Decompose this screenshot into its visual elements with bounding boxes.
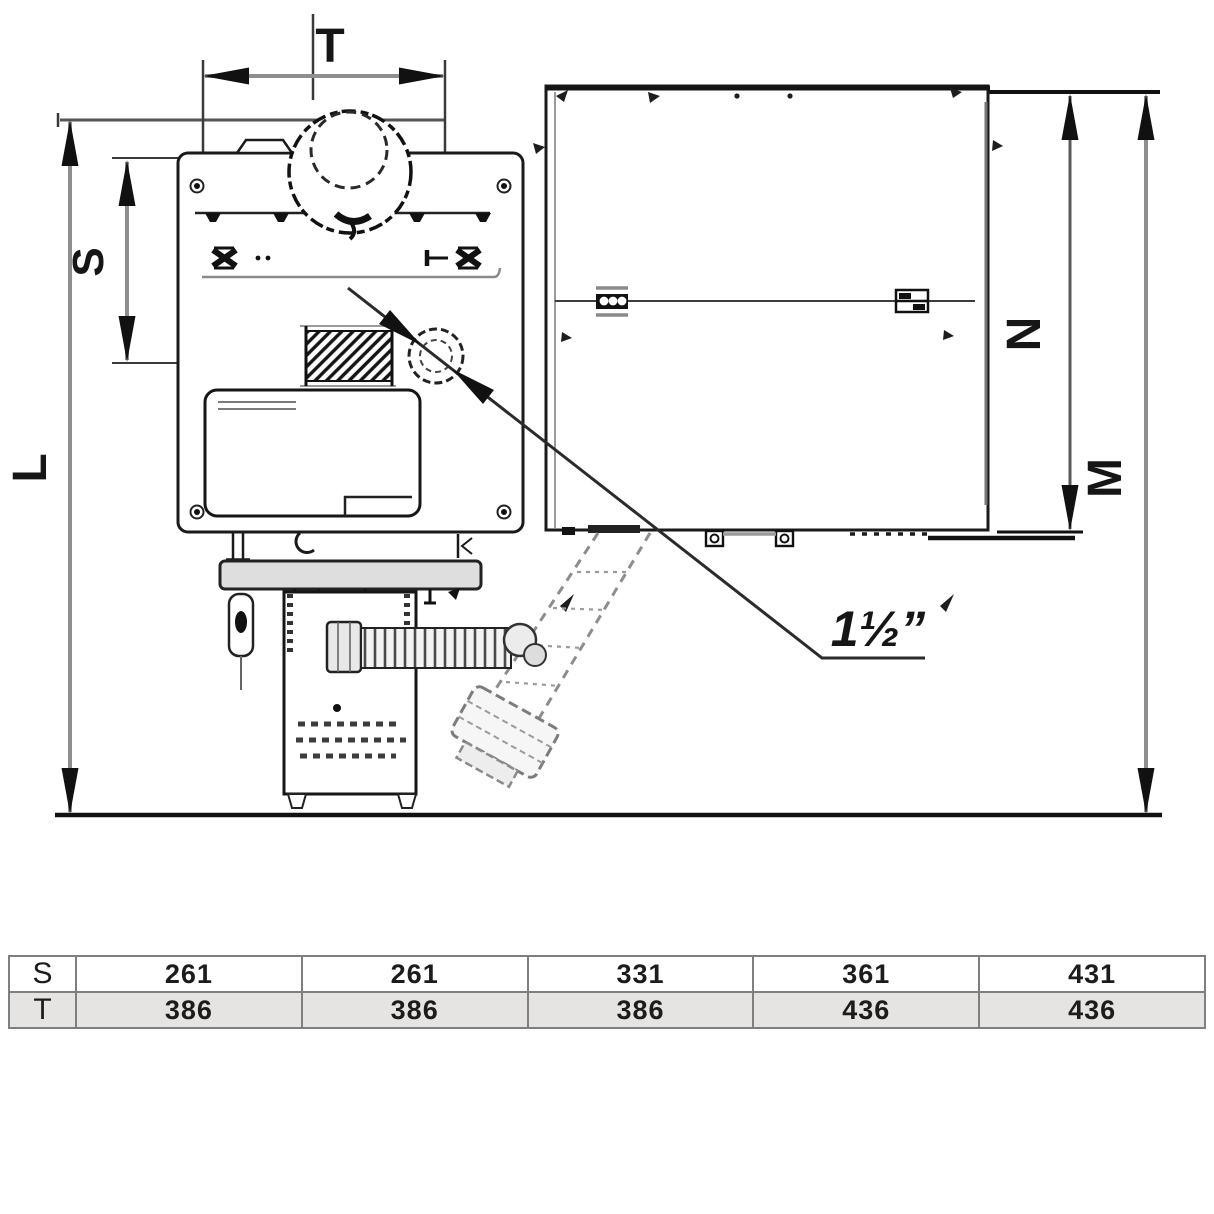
table-cell: 386 [76, 992, 302, 1028]
table-cell: 261 [302, 956, 528, 992]
row-label-S: S [9, 956, 76, 992]
dimension-table: S 261 261 331 361 431 T 386 386 386 436 … [8, 955, 1206, 1029]
table-cell: 431 [979, 956, 1205, 992]
dim-label-N: N [998, 317, 1051, 352]
table-cell: 331 [528, 956, 754, 992]
corrugated-hose [327, 622, 546, 672]
dim-T: T [203, 20, 445, 85]
dim-label-M: M [1079, 458, 1132, 498]
burner-front-view [178, 111, 523, 532]
dim-M: M [1079, 94, 1155, 814]
burner-dimension-diagram: 1½” T S L N M [0, 0, 1214, 945]
table-row-S: S 261 261 331 361 431 [9, 956, 1205, 992]
hose-hex-fitting [441, 684, 561, 795]
table-cell: 436 [753, 992, 979, 1028]
row-label-T: T [9, 992, 76, 1028]
side-bracket [229, 594, 253, 690]
table-cell: 261 [76, 956, 302, 992]
table-cell: 386 [302, 992, 528, 1028]
dim-N: N [998, 94, 1079, 531]
technical-drawing-page: 1½” T S L N M S 261 26 [0, 0, 1214, 1214]
table-cell: 436 [979, 992, 1205, 1028]
connection-size-label: 1½” [831, 601, 926, 657]
dim-label-T: T [315, 20, 344, 73]
dim-L: L [4, 120, 79, 814]
dim-label-L: L [4, 453, 57, 482]
right-hinge [896, 290, 928, 312]
threaded-connection [300, 326, 463, 386]
table-cell: 361 [753, 956, 979, 992]
table-cell: 386 [528, 992, 754, 1028]
dim-S: S [64, 160, 136, 362]
control-box [205, 390, 420, 516]
table-row-T: T 386 386 386 436 436 [9, 992, 1205, 1028]
mounting-brackets [226, 532, 472, 560]
boiler-panel-side-view [533, 86, 1075, 612]
